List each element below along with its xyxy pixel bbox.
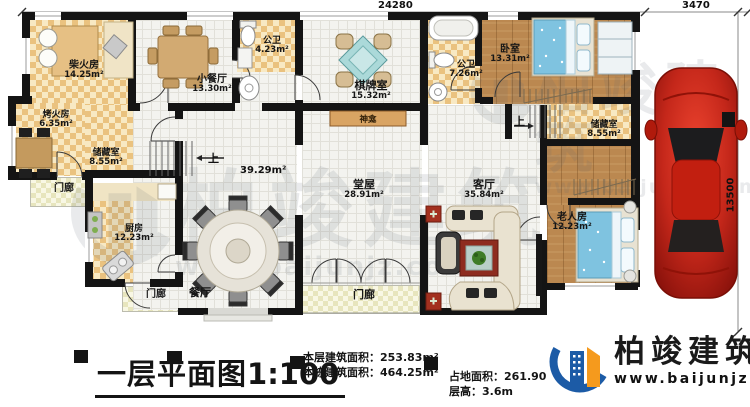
room-label-kitchen: 厨房12.23m² <box>114 224 153 244</box>
stat-floor-area: 本层建筑面积：253.83m² <box>303 350 439 365</box>
stat-land-area: 占地面积：261.90 <box>449 369 546 384</box>
room-label-porch-center: 门廊 <box>353 289 375 301</box>
fire-room-table <box>16 128 52 178</box>
bath2-fixtures <box>429 16 478 101</box>
living-room-furniture <box>426 206 542 310</box>
stats-right: 占地面积：261.90 层高：3.6m <box>449 369 546 399</box>
stats-left: 本层建筑面积：253.83m² 本栋建筑面积：464.25m² <box>303 350 439 380</box>
hall-area-label: 39.29m² <box>240 165 286 176</box>
room-label-living: 客厅35.84m² <box>464 179 503 201</box>
room-label-dining: 餐厅 <box>189 287 211 299</box>
room-label-firewood: 柴火房14.25m² <box>64 60 103 81</box>
brand-logo-icon <box>548 337 610 399</box>
room-label-storage-right: 储藏室8.55m² <box>587 120 621 140</box>
brand-name: 柏竣建筑 <box>614 337 750 368</box>
room-label-bedroom: 卧室13.31m² <box>490 44 529 65</box>
room-label-main-hall: 堂屋28.91m² <box>344 179 383 201</box>
dimension-right: 13500 <box>726 178 737 213</box>
stair-up-label-left: 上 <box>208 150 219 166</box>
room-label-porch-topleft: 门廊 <box>54 183 74 194</box>
dimension-top: 24280 <box>378 0 413 11</box>
room-label-storage-left: 储藏室8.55m² <box>89 148 123 168</box>
bedroom-furniture <box>532 18 632 76</box>
brand-logo: 柏竣建筑 www.baijunjz.com <box>548 337 750 399</box>
room-label-elder: 老人房12.23m² <box>552 212 591 233</box>
dimension-top-right: 3470 <box>682 0 710 11</box>
room-label-fireheat: 烤火房6.35m² <box>39 110 73 130</box>
floor-plan-canvas: 柏竣建筑 www.baijunjz.com 柏竣建筑 www.baijunjz.… <box>0 0 750 407</box>
bath1-fixtures <box>238 21 259 100</box>
stat-floor-height: 层高：3.6m <box>449 384 546 399</box>
brand-url: www.baijunjz.com <box>614 371 750 387</box>
room-label-shrine: 神龛 <box>359 113 376 125</box>
stat-building-area: 本栋建筑面积：464.25m² <box>303 365 439 380</box>
room-label-small-dining: 小餐厅13.30m² <box>192 74 231 95</box>
room-label-chess: 棋牌室15.32m² <box>351 80 390 102</box>
room-label-porch-leftbottom: 门廊 <box>146 289 166 300</box>
room-label-bath1: 公卫4.23m² <box>255 36 289 56</box>
room-label-bath2: 公卫7.26m² <box>449 60 483 80</box>
stair-up-label-right: 上 <box>514 113 525 129</box>
